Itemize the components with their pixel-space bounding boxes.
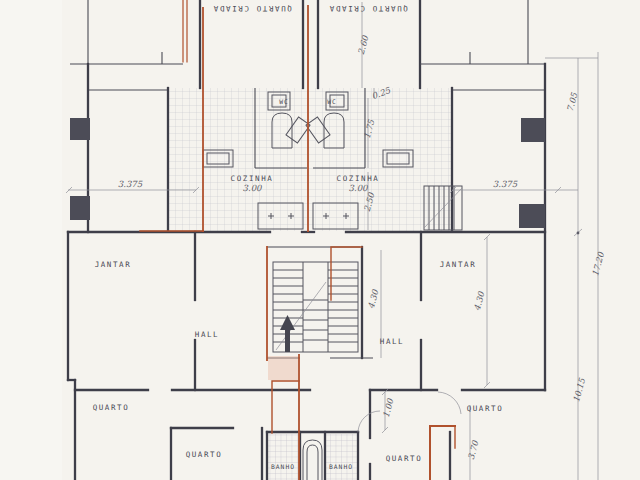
- room-label-hall-right: HALL: [380, 337, 404, 346]
- room-label-hall-left: HALL: [195, 330, 219, 339]
- red-wash: [268, 356, 298, 380]
- room-label-wc-right: WC: [327, 98, 337, 105]
- dim-kitchen-left: 3.00: [243, 183, 263, 193]
- room-label-wc-left: WC: [279, 98, 289, 105]
- room-label-maid-left: QUARTO CRIADA: [212, 4, 292, 13]
- room-label-bedroom-left-inner: QUARTO: [186, 450, 223, 459]
- room-label-bath-right: BANHO: [329, 463, 353, 470]
- room-label-bath-left: BANHO: [271, 463, 295, 470]
- room-label-dining-left: JANTAR: [95, 260, 132, 269]
- service-tank: [70, 118, 90, 140]
- room-label-bedroom-right: QUARTO: [467, 404, 504, 413]
- dim-bay-left: 3.375: [118, 179, 143, 189]
- dim-bay-right: 3.375: [493, 179, 518, 189]
- service-tank: [521, 118, 545, 142]
- floor-plan-page: QUARTO CRIADA QUARTO CRIADA WC WC COZINH…: [0, 0, 640, 480]
- floor-plan-canvas: QUARTO CRIADA QUARTO CRIADA WC WC COZINH…: [0, 0, 640, 480]
- service-tank: [519, 204, 545, 228]
- room-label-dining-right: JANTAR: [440, 260, 477, 269]
- room-label-bedroom-left: QUARTO: [93, 403, 130, 412]
- dim-kitchen-right: 3.00: [349, 183, 369, 193]
- room-label-bedroom-center: QUARTO: [386, 454, 423, 463]
- room-label-maid-right: QUARTO CRIADA: [328, 4, 408, 13]
- room-label-kitchen-left: COZINHA: [231, 174, 274, 183]
- paper-margin: [0, 0, 62, 480]
- service-tank: [70, 196, 90, 220]
- room-label-kitchen-right: COZINHA: [337, 174, 380, 183]
